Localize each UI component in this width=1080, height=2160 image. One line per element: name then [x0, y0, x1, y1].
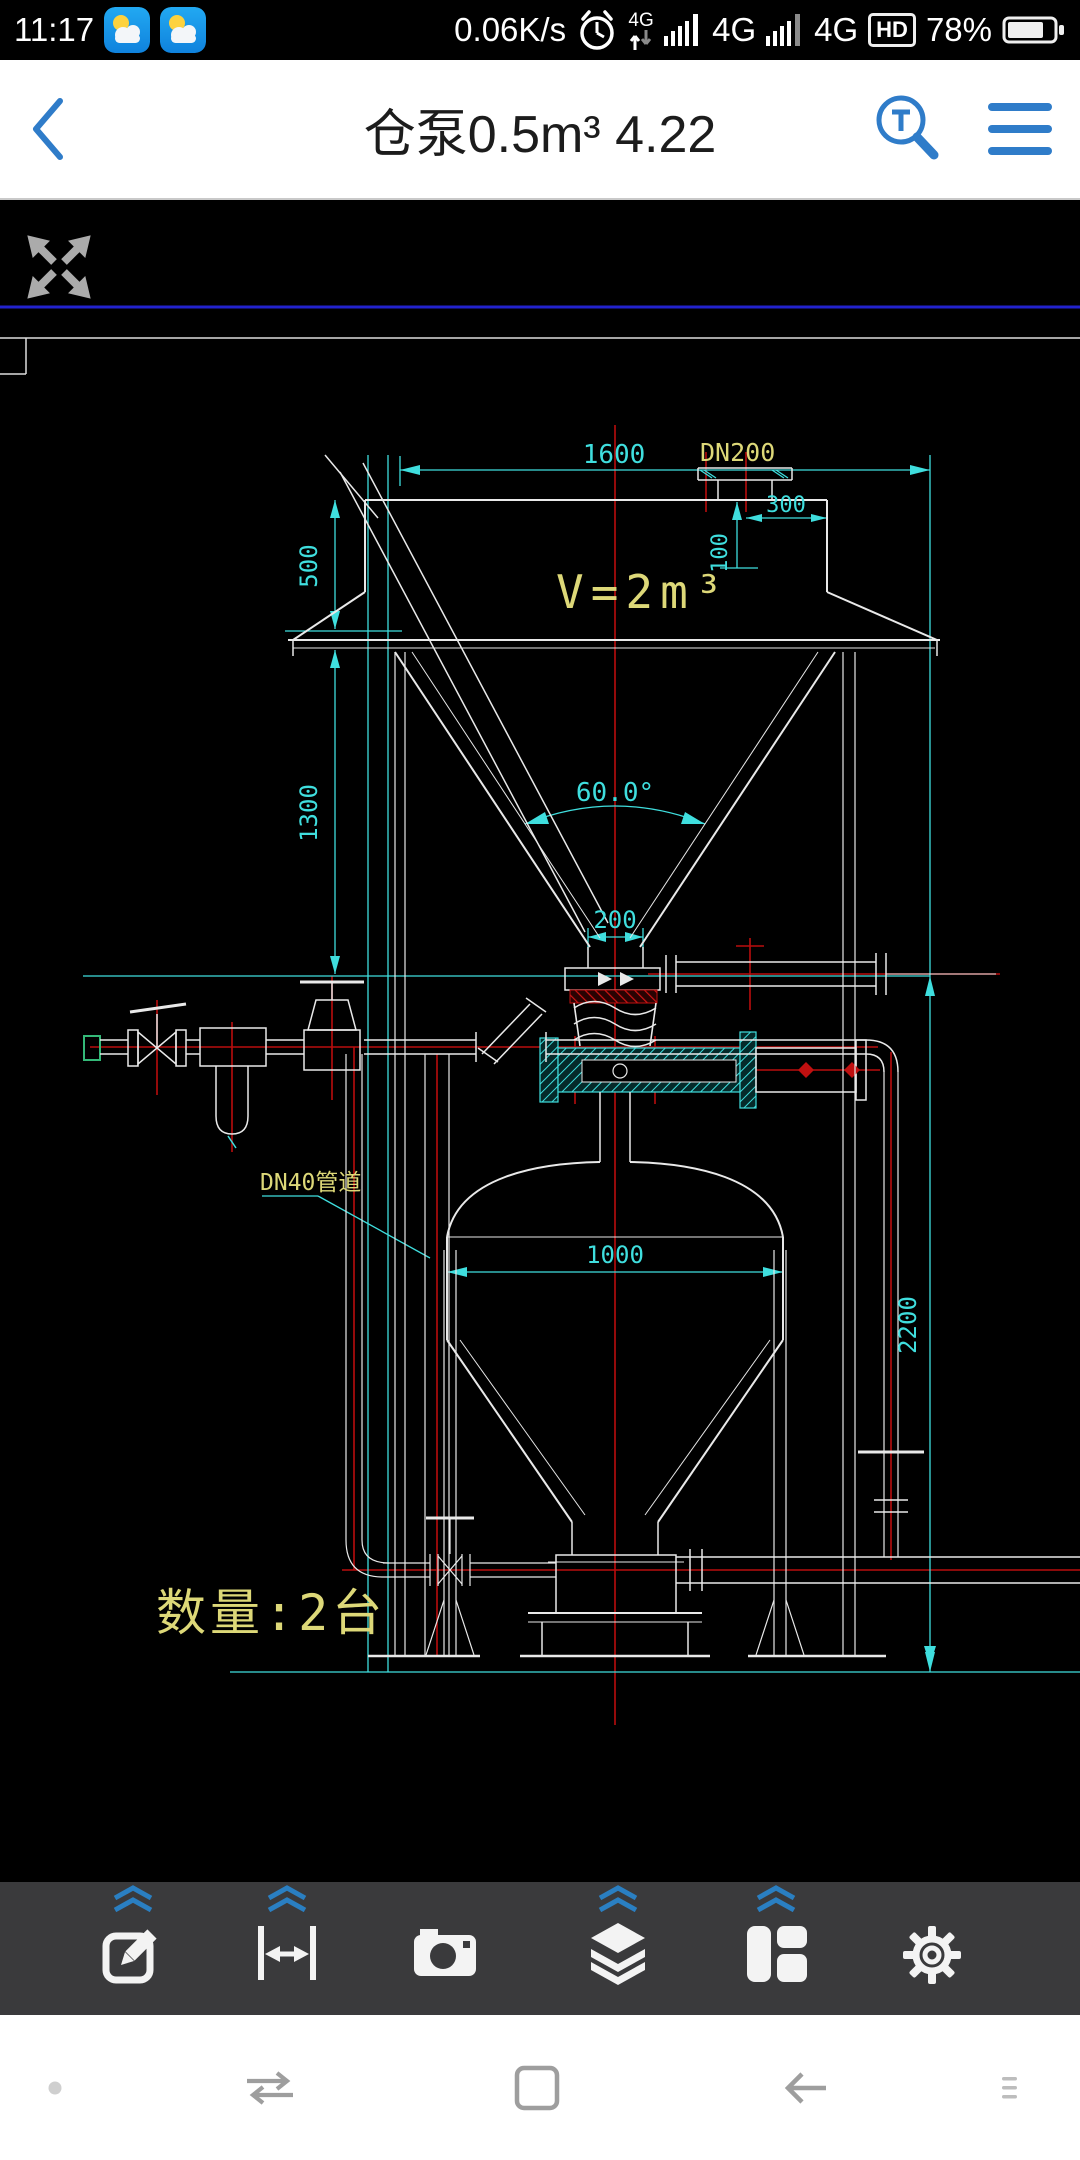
layout-button[interactable] — [741, 1918, 811, 1988]
network-speed: 0.06K/s — [454, 11, 566, 49]
status-time: 11:17 — [14, 11, 94, 49]
signal-bars-icon — [664, 14, 702, 46]
edit-button[interactable] — [98, 1918, 168, 1988]
chevron-up-icon[interactable] — [111, 1884, 155, 1914]
cad-canvas[interactable]: 1600 DN200 300 100 500 1300 60.0° 200 V=… — [0, 200, 1080, 1882]
gesture-nav-bar — [0, 2015, 1080, 2160]
nav-more-icon[interactable] — [1000, 2075, 1020, 2101]
chevron-up-icon[interactable] — [596, 1884, 640, 1914]
cad-drawing: 1600 DN200 300 100 500 1300 60.0° 200 V=… — [0, 200, 1080, 1882]
nav-recents-icon[interactable] — [513, 2064, 561, 2112]
dim-1300-label: 1300 — [295, 784, 323, 842]
nav-dot-icon[interactable] — [46, 2079, 64, 2097]
dim-200-label: 200 — [593, 906, 636, 934]
weather-icon — [160, 7, 206, 53]
settings-button[interactable] — [897, 1918, 967, 1988]
quantity-label: 数量:2台 — [156, 1584, 386, 1642]
nav-switch-apps-icon[interactable] — [241, 2068, 299, 2108]
menu-icon[interactable] — [988, 103, 1052, 155]
nav-back-icon[interactable] — [780, 2067, 832, 2109]
chevron-up-icon[interactable] — [265, 1884, 309, 1914]
battery-icon — [1002, 15, 1066, 45]
dim-1000-label: 1000 — [586, 1241, 644, 1269]
volume-label: V=2m³ — [556, 565, 729, 619]
angle-label: 60.0° — [576, 778, 654, 808]
chevron-up-icon[interactable] — [754, 1884, 798, 1914]
camera-button[interactable] — [410, 1918, 480, 1988]
battery-percent: 78% — [926, 11, 992, 49]
dn40-pipe-label: DN40管道 — [260, 1170, 361, 1196]
weather-icon — [104, 7, 150, 53]
measure-button[interactable] — [252, 1918, 322, 1988]
layers-button[interactable] — [583, 1918, 653, 1990]
dim-1600-label: 1600 — [583, 440, 646, 470]
alarm-icon — [576, 7, 618, 53]
back-icon[interactable] — [26, 91, 70, 167]
text-search-icon[interactable] — [870, 90, 948, 168]
dim-500-label: 500 — [295, 544, 323, 587]
bottom-toolbar — [0, 1882, 1080, 2015]
sheet-frame — [0, 307, 1080, 374]
nozzle-dn200-label: DN200 — [700, 438, 775, 467]
status-bar: 11:17 0.06K/s 4G — [0, 0, 1080, 60]
air-supply-station — [84, 982, 898, 1148]
hopper-bin — [288, 455, 940, 968]
dim-300-label: 300 — [766, 493, 806, 518]
dim-2200-label: 2200 — [894, 1296, 922, 1354]
signal-bars-icon — [766, 14, 804, 46]
hd-badge: HD — [868, 13, 916, 47]
data-traffic-icon: 4G — [628, 11, 654, 50]
title-bar: 仓泵0.5m³ 4.22 — [0, 60, 1080, 200]
carrier1-label: 4G — [712, 11, 756, 49]
carrier2-label: 4G — [814, 11, 858, 49]
